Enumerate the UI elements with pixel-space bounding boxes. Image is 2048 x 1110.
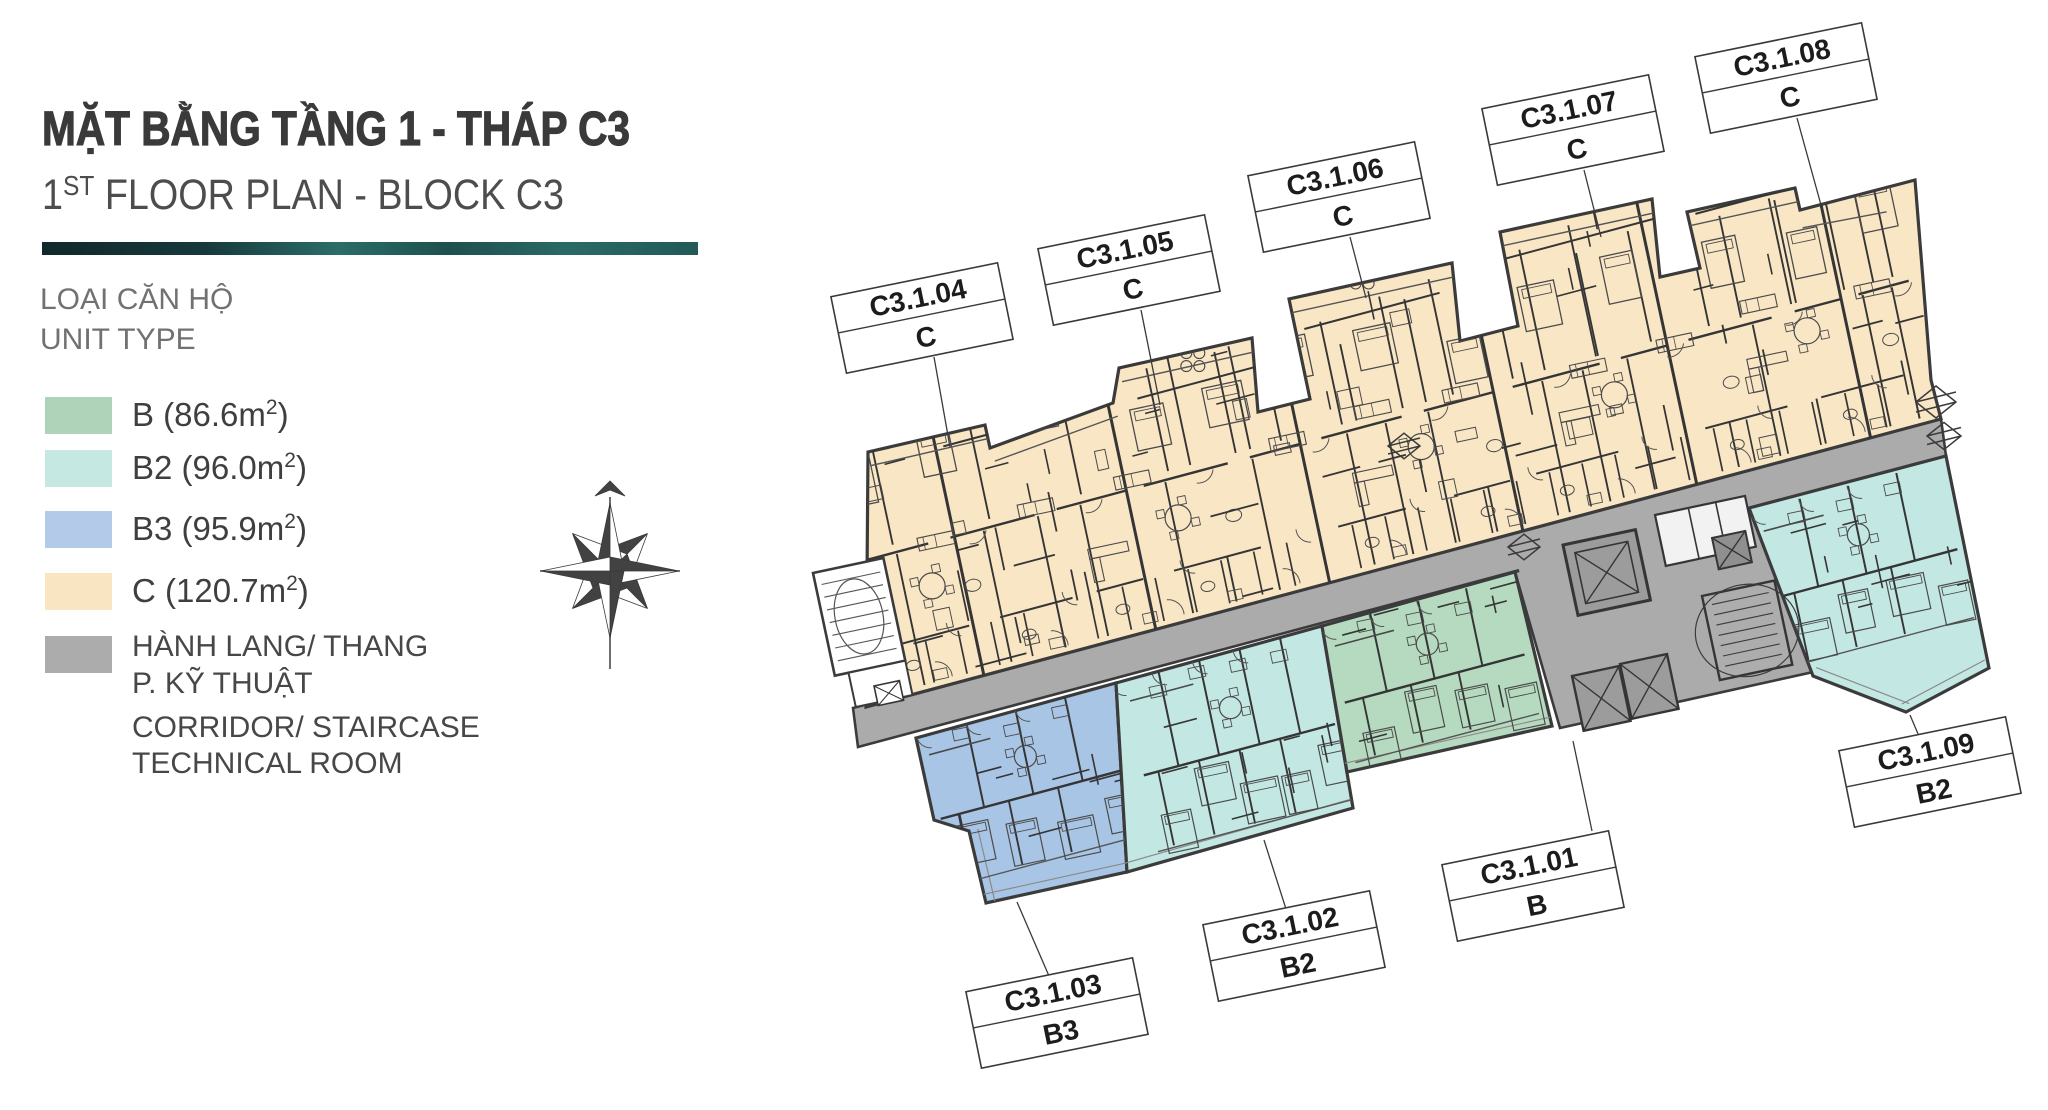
svg-text:LOẠI CĂN HỘ: LOẠI CĂN HỘ [40,282,233,316]
svg-text:P. KỸ THUẬT: P. KỸ THUẬT [132,666,313,700]
svg-text:CORRIDOR/ STAIRCASE: CORRIDOR/ STAIRCASE [132,711,480,744]
svg-text:B (86.6m2): B (86.6m2) [132,396,289,433]
svg-text:UNIT TYPE: UNIT TYPE [40,323,196,356]
svg-text:C (120.7m2): C (120.7m2) [132,572,309,609]
svg-text:B2 (96.0m2): B2 (96.0m2) [132,449,307,486]
svg-text:HÀNH LANG/ THANG: HÀNH LANG/ THANG [132,630,428,663]
svg-text:B3 (95.9m2): B3 (95.9m2) [132,510,307,547]
svg-text:MẶT BẰNG TẦNG 1 - THÁP C3: MẶT BẰNG TẦNG 1 - THÁP C3 [42,102,630,156]
svg-text:1ST FLOOR PLAN - BLOCK C3: 1ST FLOOR PLAN - BLOCK C3 [42,170,564,219]
svg-text:TECHNICAL ROOM: TECHNICAL ROOM [132,747,403,780]
